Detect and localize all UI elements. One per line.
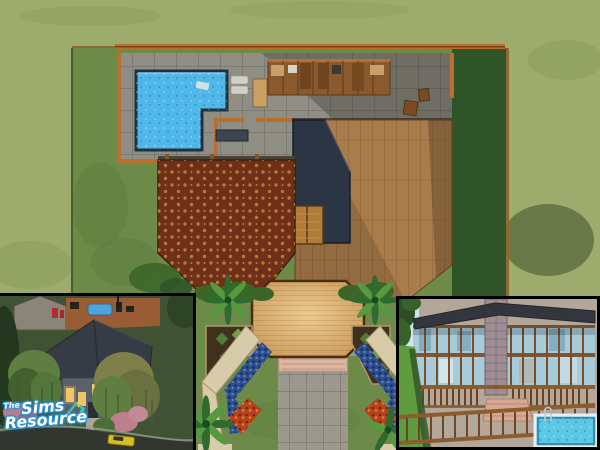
- lounge-chair[interactable]: [231, 76, 248, 84]
- hedge-strip: [452, 48, 508, 300]
- day-exterior-scene: [399, 299, 597, 447]
- curtain: [439, 359, 453, 383]
- red-door: [60, 310, 64, 318]
- patio-object: [70, 302, 79, 309]
- watermark-the: The: [3, 400, 20, 410]
- outdoor-table[interactable]: [253, 79, 267, 107]
- counter-item[interactable]: [271, 65, 284, 76]
- red-door: [52, 308, 58, 318]
- grass-patch: [20, 6, 160, 26]
- counter-item[interactable]: [370, 65, 384, 75]
- curtain: [559, 357, 577, 383]
- bench[interactable]: [216, 130, 248, 141]
- tsr-house-icon: [65, 399, 86, 417]
- palm-tree[interactable]: [203, 275, 253, 325]
- grill[interactable]: [332, 65, 341, 74]
- inset-day-exterior[interactable]: [396, 296, 600, 450]
- fence-rail: [115, 46, 505, 48]
- counter-edge: [268, 59, 390, 62]
- sink[interactable]: [288, 65, 297, 73]
- lot-boundary-line: [506, 48, 509, 300]
- game-viewport[interactable]: TheSims Resource: [0, 0, 600, 450]
- lounge-chair[interactable]: [231, 86, 248, 94]
- fence-left[interactable]: [117, 51, 121, 163]
- outdoor-kitchen-counters[interactable]: [268, 59, 390, 95]
- patio-object: [126, 306, 134, 312]
- back-patio: [66, 298, 160, 330]
- cabinet[interactable]: [318, 63, 329, 89]
- grass-patch: [72, 163, 128, 247]
- carpet-pattern: [158, 160, 295, 289]
- fence-right[interactable]: [450, 53, 454, 98]
- palm-tree[interactable]: [350, 275, 400, 325]
- chair[interactable]: [403, 100, 418, 116]
- fence-pool[interactable]: [256, 118, 294, 122]
- back-pool: [88, 304, 112, 315]
- double-door[interactable]: [291, 206, 323, 244]
- tree-shadow: [502, 204, 594, 276]
- pink-bush: [128, 406, 148, 422]
- cabinet[interactable]: [352, 63, 364, 91]
- grass-patch: [230, 1, 410, 19]
- lot-boundary-line: [72, 46, 115, 48]
- interior-glimpse: [519, 359, 535, 383]
- lamp-post: [117, 296, 119, 309]
- hedge-bush: [250, 287, 274, 301]
- cabinet[interactable]: [300, 63, 311, 89]
- fence-pool[interactable]: [214, 118, 244, 122]
- lot-boundary-line: [71, 48, 73, 294]
- chair[interactable]: [418, 89, 429, 102]
